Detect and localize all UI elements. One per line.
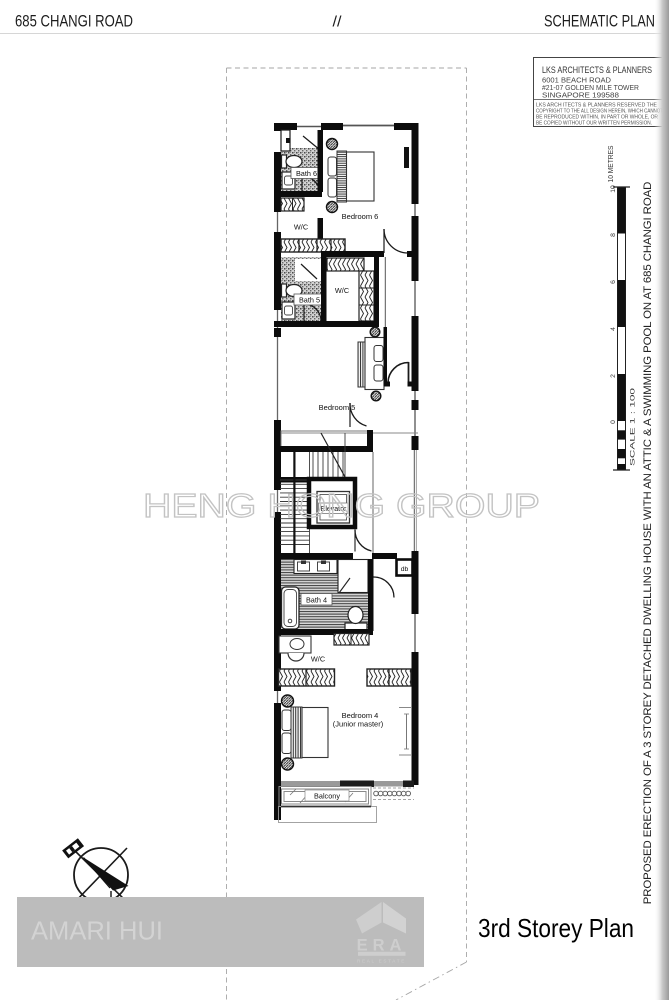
svg-text:6: 6 [610,280,617,284]
svg-text:LKS ARCHITECTS & PLANNERS: LKS ARCHITECTS & PLANNERS [542,65,652,76]
svg-text:2: 2 [610,374,617,378]
svg-text:REAL ESTATE: REAL ESTATE [357,959,406,964]
svg-text:SCHEMATIC PLAN: SCHEMATIC PLAN [544,12,655,31]
svg-text://: // [333,14,343,31]
svg-text:HENG HONG GROUP: HENG HONG GROUP [143,487,540,524]
svg-text:Bath 4: Bath 4 [306,596,327,605]
svg-text:10 METRES: 10 METRES [606,146,615,183]
svg-text:Balcony: Balcony [314,792,340,801]
svg-text:AMARI HUI: AMARI HUI [31,916,163,946]
svg-text:BE COPIED WITHOUT OUR WRITTEN: BE COPIED WITHOUT OUR WRITTEN PERMISSION… [536,121,652,127]
svg-text:(Junior master): (Junior master) [333,720,384,729]
svg-text:685 CHANGI ROAD: 685 CHANGI ROAD [15,12,133,31]
svg-text:4: 4 [610,327,617,331]
svg-text:0: 0 [610,420,617,424]
svg-text:10: 10 [610,185,617,193]
svg-text:W/C: W/C [335,286,349,295]
svg-text:Bedroom 6: Bedroom 6 [342,212,379,221]
svg-text:db: db [401,566,409,573]
svg-text:W/C: W/C [294,223,308,232]
svg-text:8: 8 [610,233,617,237]
svg-text:PROPOSED ERECTION OF A 3 STORE: PROPOSED ERECTION OF A 3 STOREY DETACHED… [642,182,654,905]
svg-text:SCALE 1 : 100: SCALE 1 : 100 [630,388,637,466]
svg-text:Bath 6: Bath 6 [296,169,317,178]
svg-text:3rd Storey Plan: 3rd Storey Plan [478,913,634,943]
svg-text:W/C: W/C [311,655,325,664]
svg-text:Bath 5: Bath 5 [299,296,320,305]
svg-text:SINGAPORE 199588: SINGAPORE 199588 [542,91,619,100]
